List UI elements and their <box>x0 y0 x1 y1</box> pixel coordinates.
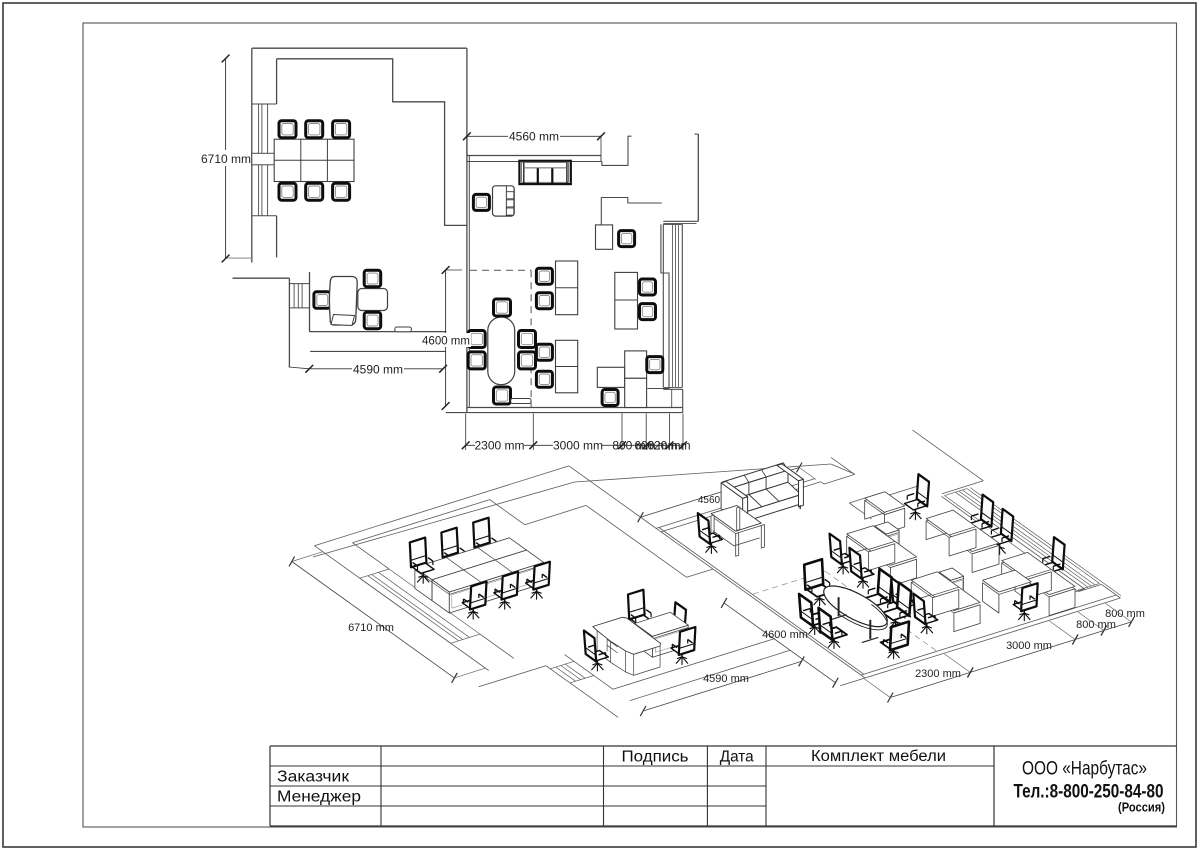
svg-text:(Россия): (Россия) <box>1118 801 1165 815</box>
svg-text:4600 mm: 4600 mm <box>422 336 470 348</box>
svg-text:Дата: Дата <box>720 749 754 766</box>
svg-text:4590 mm: 4590 mm <box>703 673 749 685</box>
svg-text:Менеджер: Менеджер <box>277 789 361 806</box>
svg-text:4560 mm: 4560 mm <box>509 130 559 144</box>
svg-text:6710 mm: 6710 mm <box>201 152 251 166</box>
svg-text:ООО «Нарбутас»: ООО «Нарбутас» <box>1022 759 1147 780</box>
svg-text:Комплект мебели: Комплект мебели <box>811 748 946 765</box>
svg-text:4560: 4560 <box>698 495 721 506</box>
svg-text:4590 mm: 4590 mm <box>353 362 403 376</box>
svg-text:2300 mm: 2300 mm <box>474 438 524 452</box>
svg-text:620 mm: 620 mm <box>647 438 690 452</box>
svg-text:800 mm: 800 mm <box>1105 608 1145 620</box>
svg-text:3000 mm: 3000 mm <box>553 438 603 452</box>
svg-text:Тел.:8-800-250-84-80: Тел.:8-800-250-84-80 <box>1014 782 1164 803</box>
svg-text:Заказчик: Заказчик <box>277 769 349 786</box>
svg-text:2300 mm: 2300 mm <box>915 668 961 680</box>
svg-text:6710 mm: 6710 mm <box>348 622 394 634</box>
svg-text:3000 mm: 3000 mm <box>1006 640 1052 652</box>
svg-text:Подпись: Подпись <box>622 749 689 766</box>
svg-text:4600 mm: 4600 mm <box>762 629 808 641</box>
